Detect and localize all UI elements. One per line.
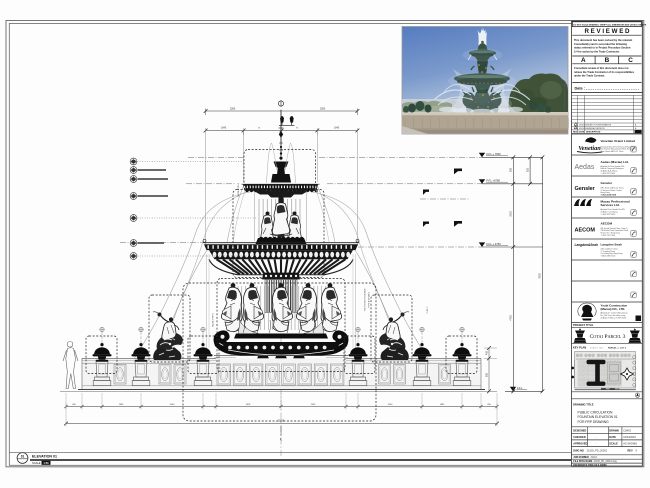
svg-text:T (852) 2830 3500: T (852) 2830 3500: [601, 256, 616, 258]
svg-text:DWG NO: DWG NO: [573, 450, 584, 453]
svg-text:Consultant(s) and is accorded: Consultant(s) and is accorded the follow…: [574, 42, 627, 46]
svg-text:PARCEL 1, LOT 2: PARCEL 1, LOT 2: [608, 347, 627, 350]
svg-text:-: -: [22, 461, 23, 464]
svg-text:FOR FRP DRAWING: FOR FRP DRAWING: [578, 420, 610, 424]
svg-text:DO NOT SCALE DRAWING. VERIFY A: DO NOT SCALE DRAWING. VERIFY ALL DIMENSI…: [573, 24, 647, 27]
svg-text:A: A: [581, 57, 586, 64]
svg-text:DESCRIPTION: DESCRIPTION: [586, 132, 601, 134]
svg-text:SCALE: SCALE: [32, 461, 41, 465]
svg-text:REV: REV: [628, 450, 633, 453]
svg-text:R E V I E W E D: R E V I E W E D: [584, 28, 630, 35]
svg-text:status referred to in Project: status referred to in Project Procedure …: [574, 46, 631, 50]
svg-text:FOUNTAIN ELEVATION 01: FOUNTAIN ELEVATION 01: [578, 415, 618, 419]
svg-text:C: C: [628, 57, 633, 64]
svg-text:TYPE B DETAILS: TYPE B DETAILS: [368, 291, 371, 308]
svg-text:01: 01: [21, 455, 25, 459]
svg-text:Taipa, Macau SAR, P.R. China: Taipa, Macau SAR, P.R. China: [601, 150, 624, 153]
svg-text:REV: REV: [573, 132, 578, 134]
svg-text:20 Andar F, Macau T 2870 3218: 20 Andar F, Macau T 2870 3218: [601, 316, 627, 319]
svg-text:450: 450: [485, 350, 488, 355]
svg-text:T +852 2317 7000: T +852 2317 7000: [601, 235, 616, 237]
svg-text:10/05/16: 10/05/16: [579, 124, 586, 126]
svg-text:T 852.2528.0918: T 852.2528.0918: [601, 195, 618, 197]
svg-text:Venetian Orient Limited: Venetian Orient Limited: [601, 139, 636, 143]
svg-text:13/04/2016: 13/04/2016: [623, 436, 636, 439]
svg-text:Venetian: Venetian: [578, 145, 601, 152]
svg-text:AECOM: AECOM: [601, 222, 613, 226]
svg-text:TAZZA TYPE A: TAZZA TYPE A: [237, 183, 240, 197]
svg-text:800: 800: [510, 167, 513, 172]
svg-text:relieve the Trade Contractor o: relieve the Trade Contractor of its resp…: [574, 70, 635, 74]
svg-text:F.F.L: F.F.L: [517, 386, 523, 390]
svg-text:THE TRITON FOUNTAIN: THE TRITON FOUNTAIN: [364, 288, 367, 311]
svg-text:Langdon&Seah: Langdon&Seah: [575, 243, 598, 247]
svg-text:PROJECT TITLE: PROJECT TITLE: [573, 323, 593, 327]
svg-text:21218: 21218: [278, 421, 285, 423]
svg-text:7600: 7600: [539, 273, 542, 279]
svg-text:3280: 3280: [320, 109, 326, 111]
svg-text:2030: 2030: [510, 211, 513, 217]
svg-text:SCALE 1:1000: SCALE 1:1000: [590, 347, 604, 350]
svg-text:Gensler: Gensler: [575, 186, 596, 192]
svg-text:CHECKED: CHECKED: [573, 436, 586, 439]
svg-text:℄: ℄: [279, 437, 282, 441]
svg-text:APPROVED: APPROVED: [573, 443, 587, 446]
svg-text:DRAWN: DRAWN: [609, 429, 619, 432]
svg-text:1:50: 1:50: [43, 461, 49, 465]
svg-text:GENERAL REVISION: GENERAL REVISION: [586, 127, 605, 130]
svg-text:DATE: DATE: [579, 131, 585, 134]
svg-text:Aedas (Macau) Ltd.: Aedas (Macau) Ltd.: [601, 160, 630, 164]
svg-text:Langdon Seah: Langdon Seah: [601, 243, 622, 247]
svg-text:REFERENCE DWG FILE NAME: REFERENCE DWG FILE NAME: [573, 464, 607, 467]
svg-text:Services Ltd.: Services Ltd.: [601, 203, 620, 207]
svg-text:3280: 3280: [230, 109, 236, 111]
svg-text:SCALE: SCALE: [609, 443, 618, 446]
svg-text:T +853 2871 5953: T +853 2871 5953: [601, 173, 616, 175]
svg-text:ISSUED FOR INFORMATION: ISSUED FOR INFORMATION: [586, 123, 612, 126]
svg-text:Date :: Date :: [575, 87, 586, 91]
svg-text:© Copyright: © Copyright: [546, 131, 558, 134]
svg-text:PUBLIC CIRCULATION: PUBLIC CIRCULATION: [578, 411, 614, 415]
svg-text:AECOM: AECOM: [575, 228, 596, 234]
svg-text:5.4 for action by the Trade Co: 5.4 for action by the Trade Contractor.: [574, 50, 620, 54]
svg-text:1640: 1640: [221, 128, 227, 130]
svg-text:B: B: [605, 57, 610, 64]
svg-text:800: 800: [485, 372, 488, 377]
svg-text:AS SHOWN: AS SHOWN: [623, 443, 637, 446]
svg-text:TYPE C: TYPE C: [427, 306, 429, 314]
svg-text:4750: 4750: [510, 315, 513, 321]
svg-text:under the Trade Contract.: under the Trade Contract.: [574, 74, 605, 78]
svg-text:31108_PD_20001: 31108_PD_20001: [587, 449, 608, 453]
svg-text:CWKO: CWKO: [623, 429, 631, 432]
svg-text:Gensler: Gensler: [601, 181, 613, 185]
svg-text:Aedas: Aedas: [575, 164, 595, 171]
svg-text:(Macau) CO., LTD.: (Macau) CO., LTD.: [601, 307, 626, 311]
svg-text:1640: 1640: [334, 128, 340, 130]
svg-text:05/05/16: 05/05/16: [579, 128, 586, 130]
svg-text:ELEVATION 01: ELEVATION 01: [32, 455, 57, 459]
svg-text:DATE: DATE: [609, 436, 616, 439]
svg-text:KEY PLAN: KEY PLAN: [573, 346, 586, 350]
svg-text:DRAWING TITLE: DRAWING TITLE: [573, 402, 594, 406]
svg-text:820: 820: [526, 167, 529, 172]
svg-text:This document has been revised: This document has been revised by the re…: [574, 38, 632, 42]
svg-text:T +853 2837 2623: T +853 2837 2623: [601, 214, 616, 216]
svg-text:TAZZA TYPE D: TAZZA TYPE D: [212, 313, 215, 327]
svg-text:Consultant review of this docu: Consultant review of this document does …: [574, 66, 629, 70]
svg-text:DESIGNED: DESIGNED: [573, 429, 586, 432]
